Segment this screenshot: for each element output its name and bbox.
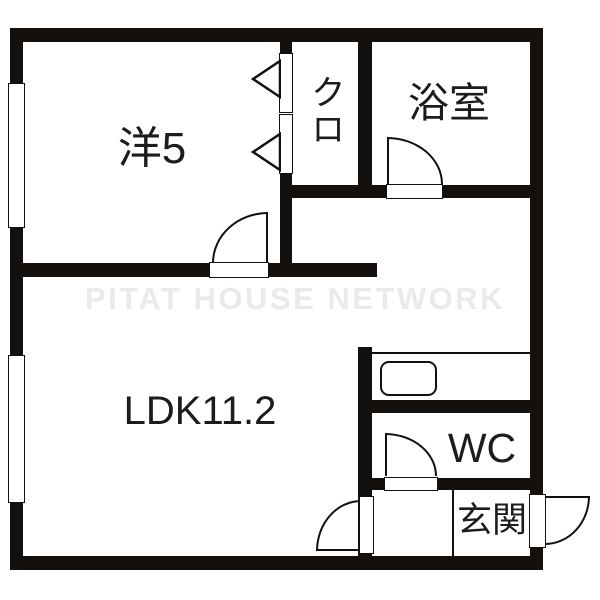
hall-door-leaf xyxy=(359,496,374,554)
label-entrance: 玄関 xyxy=(452,503,532,540)
wall-wc-top xyxy=(358,400,530,413)
label-ldk: LDK11.2 xyxy=(100,390,300,432)
wall-bottom xyxy=(10,556,543,570)
kitchen-sink xyxy=(380,361,437,396)
watermark-text: PITAT HOUSE NETWORK xyxy=(85,281,545,317)
wc-door-leaf xyxy=(384,477,438,491)
kitchen-counter-edge xyxy=(372,352,530,354)
closet-door-leaf-lower xyxy=(279,114,293,174)
bathroom-door-leaf xyxy=(386,184,443,199)
window-western-room xyxy=(8,83,25,228)
wc-door-arc-icon xyxy=(385,433,437,476)
label-wc: WC xyxy=(437,427,527,470)
western-room-door-arc-icon xyxy=(212,212,268,263)
label-western-room: 洋5 xyxy=(92,126,212,172)
wall-right xyxy=(530,28,543,570)
western-room-door-leaf xyxy=(209,262,269,278)
entrance-door-arc-icon xyxy=(545,496,590,545)
window-ldk xyxy=(8,355,25,503)
wall-ldk-top xyxy=(10,263,377,277)
hall-door-arc-icon xyxy=(316,500,361,551)
label-bathroom: 浴室 xyxy=(389,82,509,125)
wall-top xyxy=(10,28,543,42)
label-closet: クロ xyxy=(306,74,343,148)
wall-closet-bathroom xyxy=(358,42,372,198)
closet-door-swing-icon-lower xyxy=(251,132,281,172)
floor-plan: PITAT HOUSE NETWORK 洋5 クロ 浴室 LDK11.2 WC … xyxy=(0,0,600,600)
bathroom-door-arc-icon xyxy=(387,137,443,184)
closet-door-leaf-upper xyxy=(279,53,293,113)
closet-door-swing-icon-upper xyxy=(251,59,281,99)
